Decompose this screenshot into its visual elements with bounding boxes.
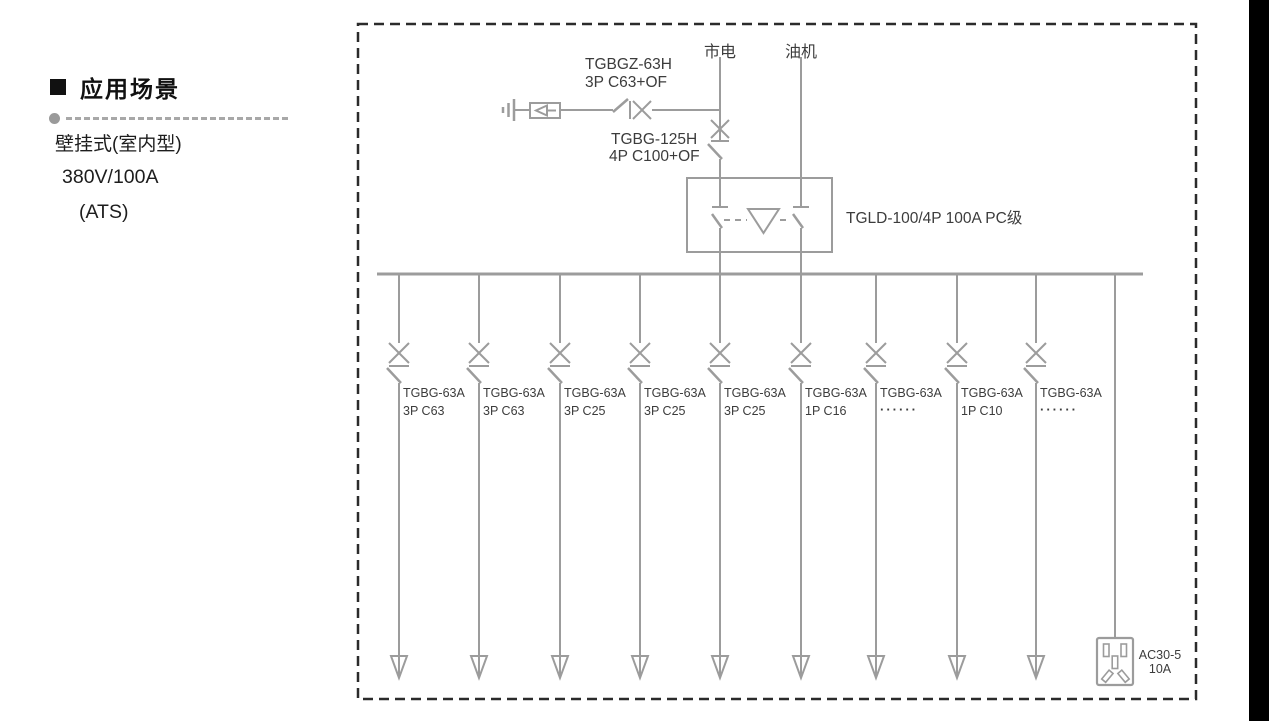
branch-model-label: TGBG-63A [724, 386, 786, 400]
spd-arrow-head-icon [536, 106, 547, 116]
branch-spec-label: 3P C25 [724, 404, 765, 418]
single-line-diagram [0, 0, 1269, 721]
breaker-blade [387, 368, 401, 383]
branch-model-label: TGBG-63A [564, 386, 626, 400]
breaker-blade [708, 368, 722, 383]
branch-spec-label: 3P C25 [564, 404, 605, 418]
breaker-blade [789, 368, 803, 383]
branch-model-label: TGBG-63A [483, 386, 545, 400]
ats-right-blade [793, 214, 803, 228]
ats-switch-label: TGLD-100/4P 100A PC级 [846, 206, 1022, 228]
branch-spec-label: 1P C16 [805, 404, 846, 418]
breaker-blade [548, 368, 562, 383]
ats-box [687, 178, 832, 252]
breaker-blade [708, 144, 722, 159]
branch-model-label: TGBG-63A [805, 386, 867, 400]
branch-model-label: TGBG-63A [961, 386, 1023, 400]
branch-spec-label: 3P C25 [644, 404, 685, 418]
branch-spec-label: ······ [1040, 402, 1078, 417]
diagram-dashed-border [358, 24, 1196, 699]
branch-spec-label: 3P C63 [483, 404, 524, 418]
branch-model-label: TGBG-63A [880, 386, 942, 400]
branch-model-label: TGBG-63A [644, 386, 706, 400]
ats-actuator-triangle-icon [748, 209, 779, 233]
main-breaker-spec-label: 4P C100+OF [609, 148, 700, 166]
generator-source-label: 油机 [773, 38, 829, 62]
branch-model-label: TGBG-63A [1040, 386, 1102, 400]
breaker-blade [864, 368, 878, 383]
branch-spec-label: ······ [880, 402, 918, 417]
breaker-blade [467, 368, 481, 383]
spd-breaker-model-label: TGBGZ-63H [585, 56, 672, 74]
socket-current-text: 10A [1136, 662, 1184, 676]
branch-spec-label: 1P C10 [961, 404, 1002, 418]
spd-breaker-blade [613, 99, 628, 112]
socket-rating-label: AC30-5 10A [1136, 648, 1184, 676]
screen-edge-black-bar [1249, 0, 1269, 721]
socket-model-text: AC30-5 [1136, 648, 1184, 662]
branch-model-label: TGBG-63A [403, 386, 465, 400]
breaker-blade [628, 368, 642, 383]
breaker-blade [945, 368, 959, 383]
mains-source-label: 市电 [692, 38, 748, 62]
ats-left-blade [712, 214, 722, 228]
breaker-blade [1024, 368, 1038, 383]
main-breaker-model-label: TGBG-125H [611, 131, 697, 149]
spd-breaker-spec-label: 3P C63+OF [585, 74, 667, 92]
branch-spec-label: 3P C63 [403, 404, 444, 418]
